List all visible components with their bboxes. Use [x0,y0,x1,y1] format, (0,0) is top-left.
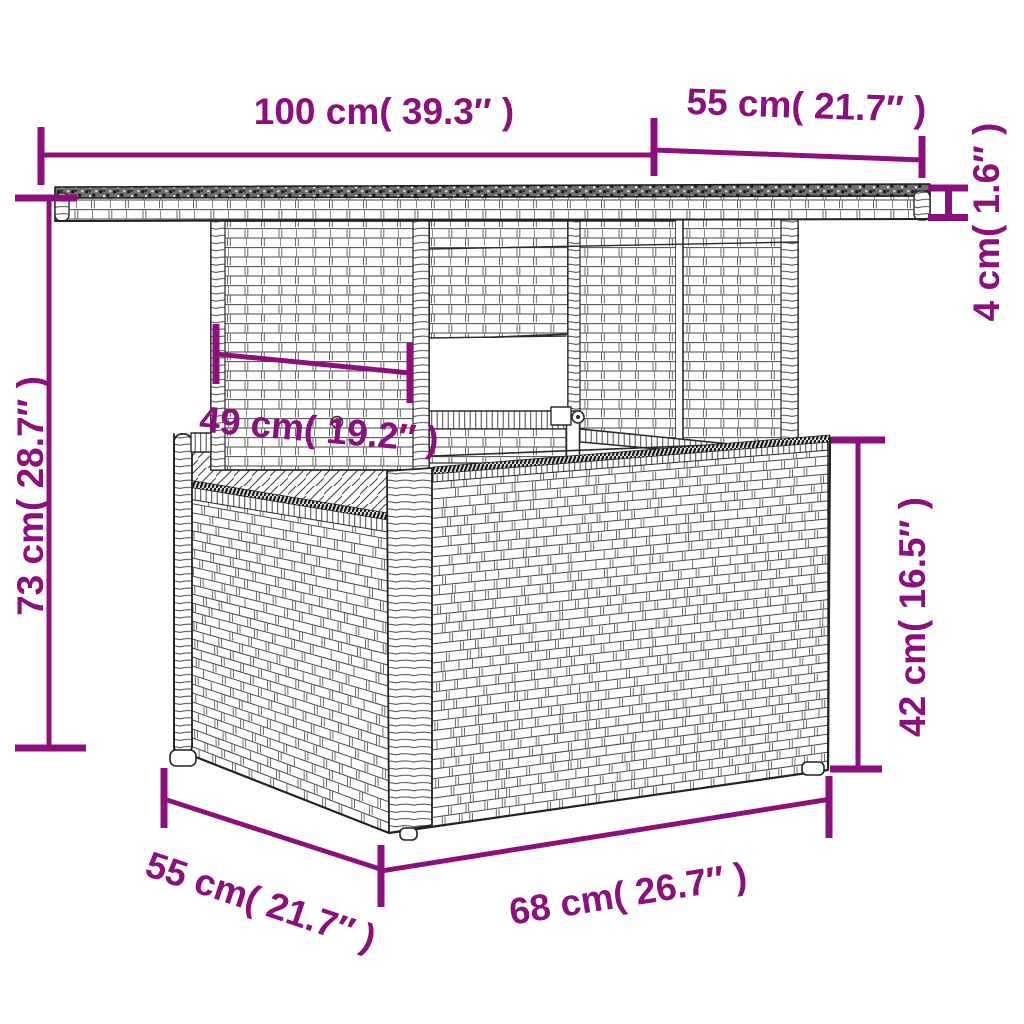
svg-text:55 cm( 21.7″ ): 55 cm( 21.7″ ) [686,81,927,130]
svg-text:100 cm( 39.3″ ): 100 cm( 39.3″ ) [254,91,514,132]
svg-text:42 cm( 16.5″ ): 42 cm( 16.5″ ) [892,497,933,737]
svg-text:73 cm( 28.7″ ): 73 cm( 28.7″ ) [10,376,51,616]
svg-text:4 cm( 1.6″ ): 4 cm( 1.6″ ) [966,123,1007,322]
